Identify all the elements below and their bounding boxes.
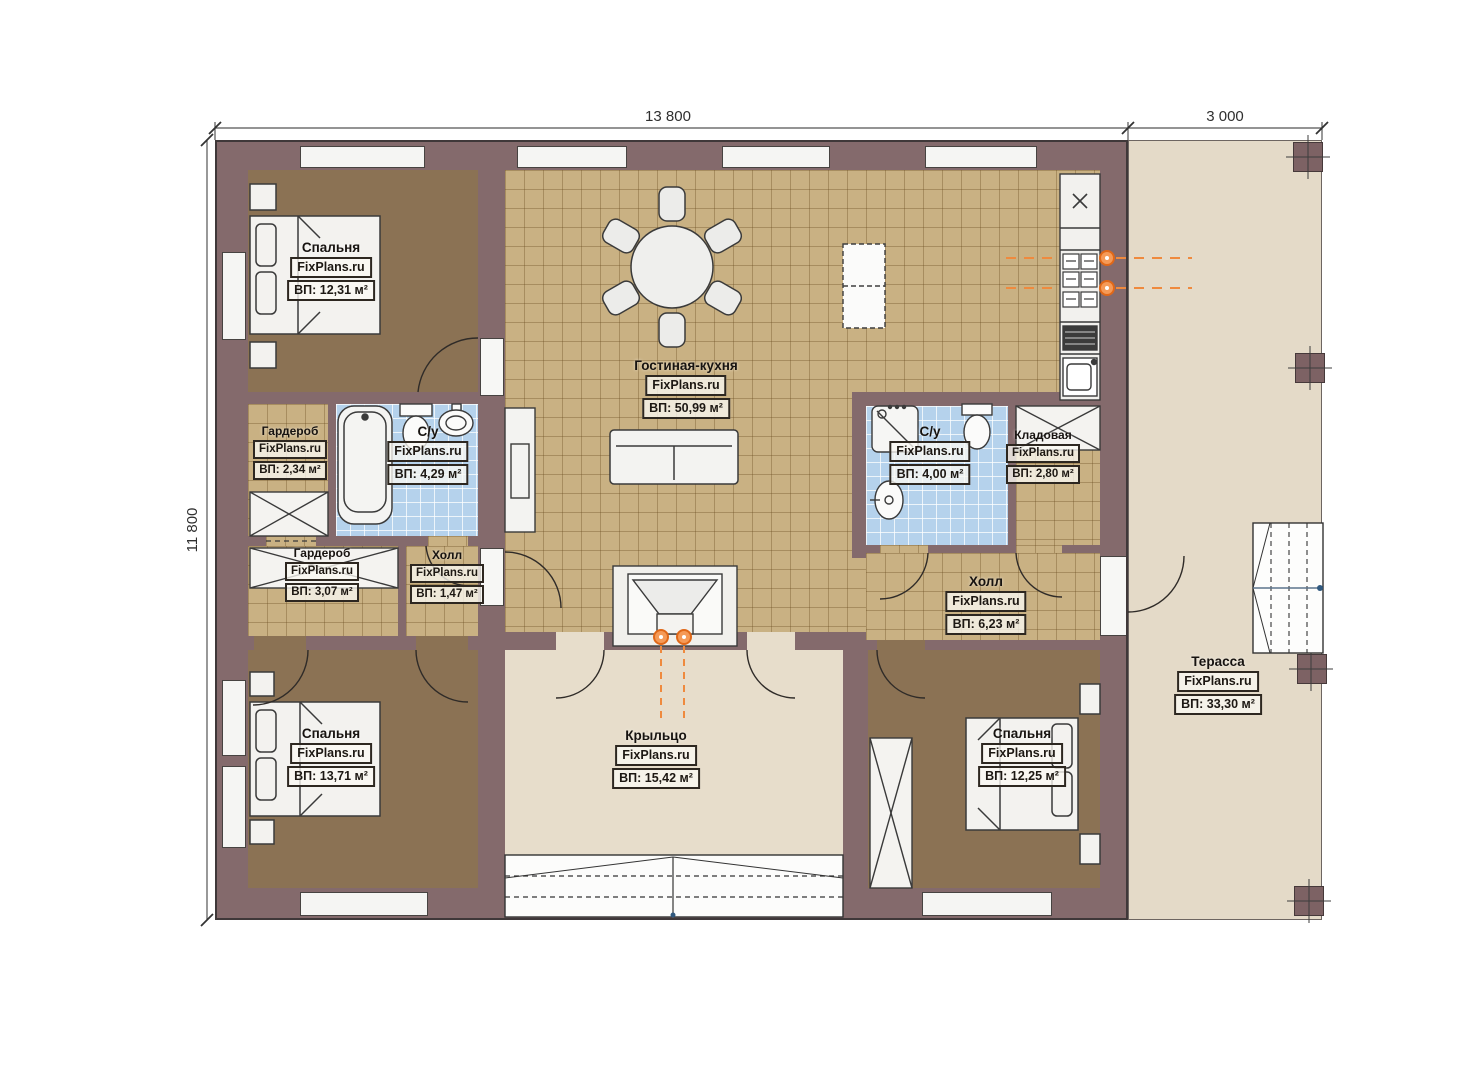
watermark-box: FixPlans.ru — [1006, 444, 1080, 463]
watermark-box: FixPlans.ru — [615, 745, 696, 766]
label-terrace: Терасса FixPlans.ru ВП: 33,30 м² — [1174, 654, 1262, 715]
area-box: ВП: 12,25 м² — [978, 766, 1066, 787]
room-name: Терасса — [1191, 654, 1245, 669]
room-name: Холл — [432, 548, 462, 562]
dimension-width-main: 13 800 — [645, 108, 691, 125]
column — [1294, 886, 1324, 916]
area-box: ВП: 33,30 м² — [1174, 694, 1262, 715]
dimension-height: 11 800 — [184, 508, 201, 553]
area-box: ВП: 12,31 м² — [287, 280, 375, 301]
column — [1295, 353, 1325, 383]
room-name: Спальня — [302, 726, 360, 741]
area-box: ВП: 50,99 м² — [642, 398, 730, 419]
room-name: Спальня — [993, 726, 1051, 741]
room-name: Кладовая — [1014, 428, 1071, 442]
watermark-box: FixPlans.ru — [253, 440, 327, 459]
area-box: ВП: 15,42 м² — [612, 768, 700, 789]
label-hall-small: Холл FixPlans.ru ВП: 1,47 м² — [410, 548, 484, 604]
room-name: Холл — [969, 574, 1003, 589]
room-name: Гардероб — [294, 546, 351, 560]
watermark-box: FixPlans.ru — [410, 564, 484, 583]
watermark-box: FixPlans.ru — [285, 562, 359, 581]
watermark-box: FixPlans.ru — [1177, 671, 1258, 692]
area-box: ВП: 2,34 м² — [253, 461, 327, 480]
area-box: ВП: 3,07 м² — [285, 583, 359, 602]
room-name: Гардероб — [262, 424, 319, 438]
label-wardrobe-top: Гардероб FixPlans.ru ВП: 2,34 м² — [253, 424, 327, 480]
label-bathroom-right: С/у FixPlans.ru ВП: 4,00 м² — [889, 424, 970, 485]
area-box: ВП: 4,29 м² — [388, 464, 469, 485]
label-bedroom-bottom-right: Спальня FixPlans.ru ВП: 12,25 м² — [978, 726, 1066, 787]
watermark-box: FixPlans.ru — [290, 257, 371, 278]
label-bedroom-top-left: Спальня FixPlans.ru ВП: 12,31 м² — [287, 240, 375, 301]
floor-plan: 13 800 3 000 11 800 — [0, 0, 1473, 1080]
area-box: ВП: 2,80 м² — [1006, 465, 1080, 484]
room-name: С/у — [919, 424, 940, 439]
room-name: С/у — [417, 424, 438, 439]
room-name: Гостиная-кухня — [634, 358, 737, 373]
area-box: ВП: 4,00 м² — [890, 464, 971, 485]
watermark-box: FixPlans.ru — [290, 743, 371, 764]
column — [1293, 142, 1323, 172]
area-box: ВП: 6,23 м² — [946, 614, 1027, 635]
watermark-box: FixPlans.ru — [981, 743, 1062, 764]
watermark-box: FixPlans.ru — [645, 375, 726, 396]
label-living-kitchen: Гостиная-кухня FixPlans.ru ВП: 50,99 м² — [634, 358, 737, 419]
watermark-box: FixPlans.ru — [387, 441, 468, 462]
label-bedroom-bottom-left: Спальня FixPlans.ru ВП: 13,71 м² — [287, 726, 375, 787]
area-box: ВП: 1,47 м² — [410, 585, 484, 604]
room-name: Спальня — [302, 240, 360, 255]
watermark-box: FixPlans.ru — [889, 441, 970, 462]
watermark-box: FixPlans.ru — [945, 591, 1026, 612]
dimension-width-terrace: 3 000 — [1206, 108, 1244, 125]
label-hall-right: Холл FixPlans.ru ВП: 6,23 м² — [945, 574, 1026, 635]
label-storage: Кладовая FixPlans.ru ВП: 2,80 м² — [1006, 428, 1080, 484]
label-porch: Крыльцо FixPlans.ru ВП: 15,42 м² — [612, 728, 700, 789]
label-bathroom-left: С/у FixPlans.ru ВП: 4,29 м² — [387, 424, 468, 485]
label-wardrobe-bottom: Гардероб FixPlans.ru ВП: 3,07 м² — [285, 546, 359, 602]
room-terrace — [1128, 140, 1322, 920]
area-box: ВП: 13,71 м² — [287, 766, 375, 787]
room-name: Крыльцо — [625, 728, 686, 743]
column — [1297, 654, 1327, 684]
